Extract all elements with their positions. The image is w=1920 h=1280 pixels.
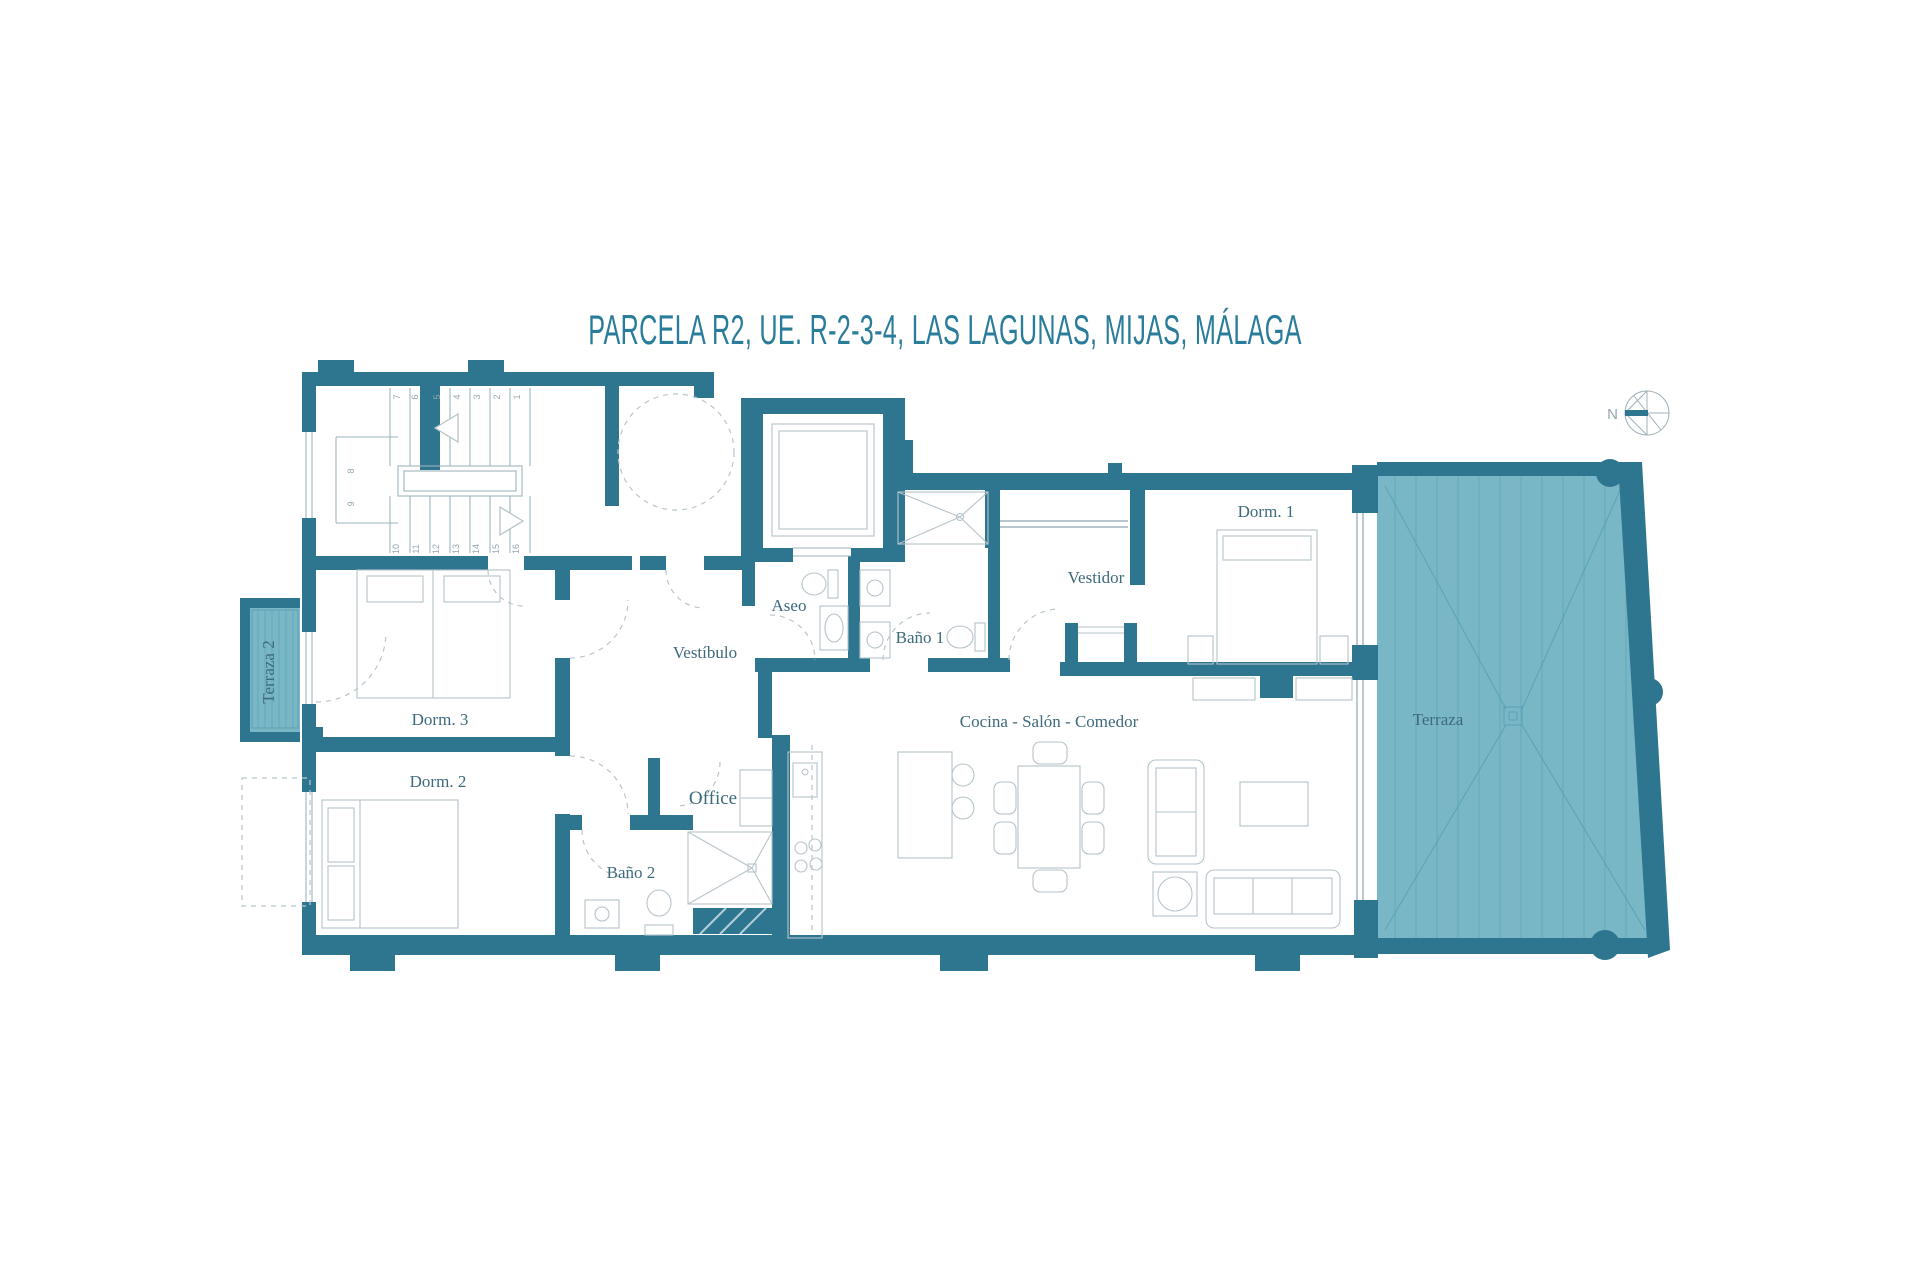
plan-title: PARCELA R2, UE. R-2-3-4, LAS LAGUNAS, MI… <box>588 306 1302 353</box>
svg-text:4: 4 <box>452 394 462 399</box>
svg-text:6: 6 <box>410 394 420 399</box>
svg-text:14: 14 <box>471 544 481 554</box>
svg-text:1: 1 <box>512 394 522 399</box>
room-label-aseo: Aseo <box>772 596 807 615</box>
room-label-vestibulo: Vestíbulo <box>673 643 737 662</box>
dining-set <box>994 742 1104 892</box>
svg-text:9: 9 <box>346 501 356 506</box>
office-desk <box>740 770 772 826</box>
room-label-terraza2: Terraza 2 <box>259 640 278 703</box>
duct-shaft <box>693 908 772 934</box>
dashed-projection <box>242 778 310 906</box>
room-label-dorm2: Dorm. 2 <box>410 772 467 791</box>
room-label-bano2: Baño 2 <box>607 863 656 882</box>
toilet-bano1 <box>947 623 985 651</box>
room-label-dorm1: Dorm. 1 <box>1238 502 1295 521</box>
svg-text:13: 13 <box>451 544 461 554</box>
sink-bano2 <box>585 900 619 928</box>
floor-plan: 1 2 3 4 5 6 7 8 9 10 11 12 13 14 15 16 <box>0 0 1920 1280</box>
room-label-vestidor: Vestidor <box>1068 568 1125 587</box>
room-label-dorm3: Dorm. 3 <box>412 710 469 729</box>
svg-text:3: 3 <box>472 394 482 399</box>
bed-dorm3 <box>357 570 510 698</box>
toilet-bano2 <box>645 890 673 935</box>
sink-aseo <box>820 606 848 650</box>
sofa-2seat <box>1148 760 1204 864</box>
svg-text:2: 2 <box>492 394 502 399</box>
bed-dorm1 <box>1188 530 1348 664</box>
room-label-cocina-salon-comedor: Cocina - Salón - Comedor <box>960 712 1139 731</box>
kitchen-counter <box>788 745 822 938</box>
terraza-main-decking <box>1377 468 1654 945</box>
north-compass: N <box>1607 391 1669 435</box>
kitchen-island <box>898 752 974 858</box>
room-label-terraza: Terraza <box>1413 710 1464 729</box>
svg-text:15: 15 <box>491 544 501 554</box>
room-label-bano1: Baño 1 <box>896 628 945 647</box>
shower-bano1 <box>898 492 988 544</box>
wardrobe-vestidor <box>1078 627 1124 633</box>
north-label: N <box>1607 406 1618 423</box>
svg-text:11: 11 <box>411 544 421 553</box>
svg-text:5: 5 <box>432 394 442 399</box>
svg-text:16: 16 <box>511 544 521 554</box>
room-label-office: Office <box>689 788 737 809</box>
north-needle <box>1625 410 1648 416</box>
plant-table <box>1153 872 1197 916</box>
svg-text:12: 12 <box>431 544 441 554</box>
toilet-aseo <box>802 570 838 598</box>
svg-text:7: 7 <box>392 394 402 399</box>
svg-text:8: 8 <box>346 468 356 473</box>
shower-bano2 <box>688 832 772 904</box>
sofa-3seat <box>1206 870 1340 928</box>
svg-text:10: 10 <box>391 544 401 554</box>
sinks-bano1 <box>860 570 890 658</box>
floor-plan-page: 1 2 3 4 5 6 7 8 9 10 11 12 13 14 15 16 <box>0 0 1920 1280</box>
bed-dorm2 <box>322 800 458 928</box>
elevator <box>772 424 874 556</box>
coffee-table <box>1240 782 1308 826</box>
